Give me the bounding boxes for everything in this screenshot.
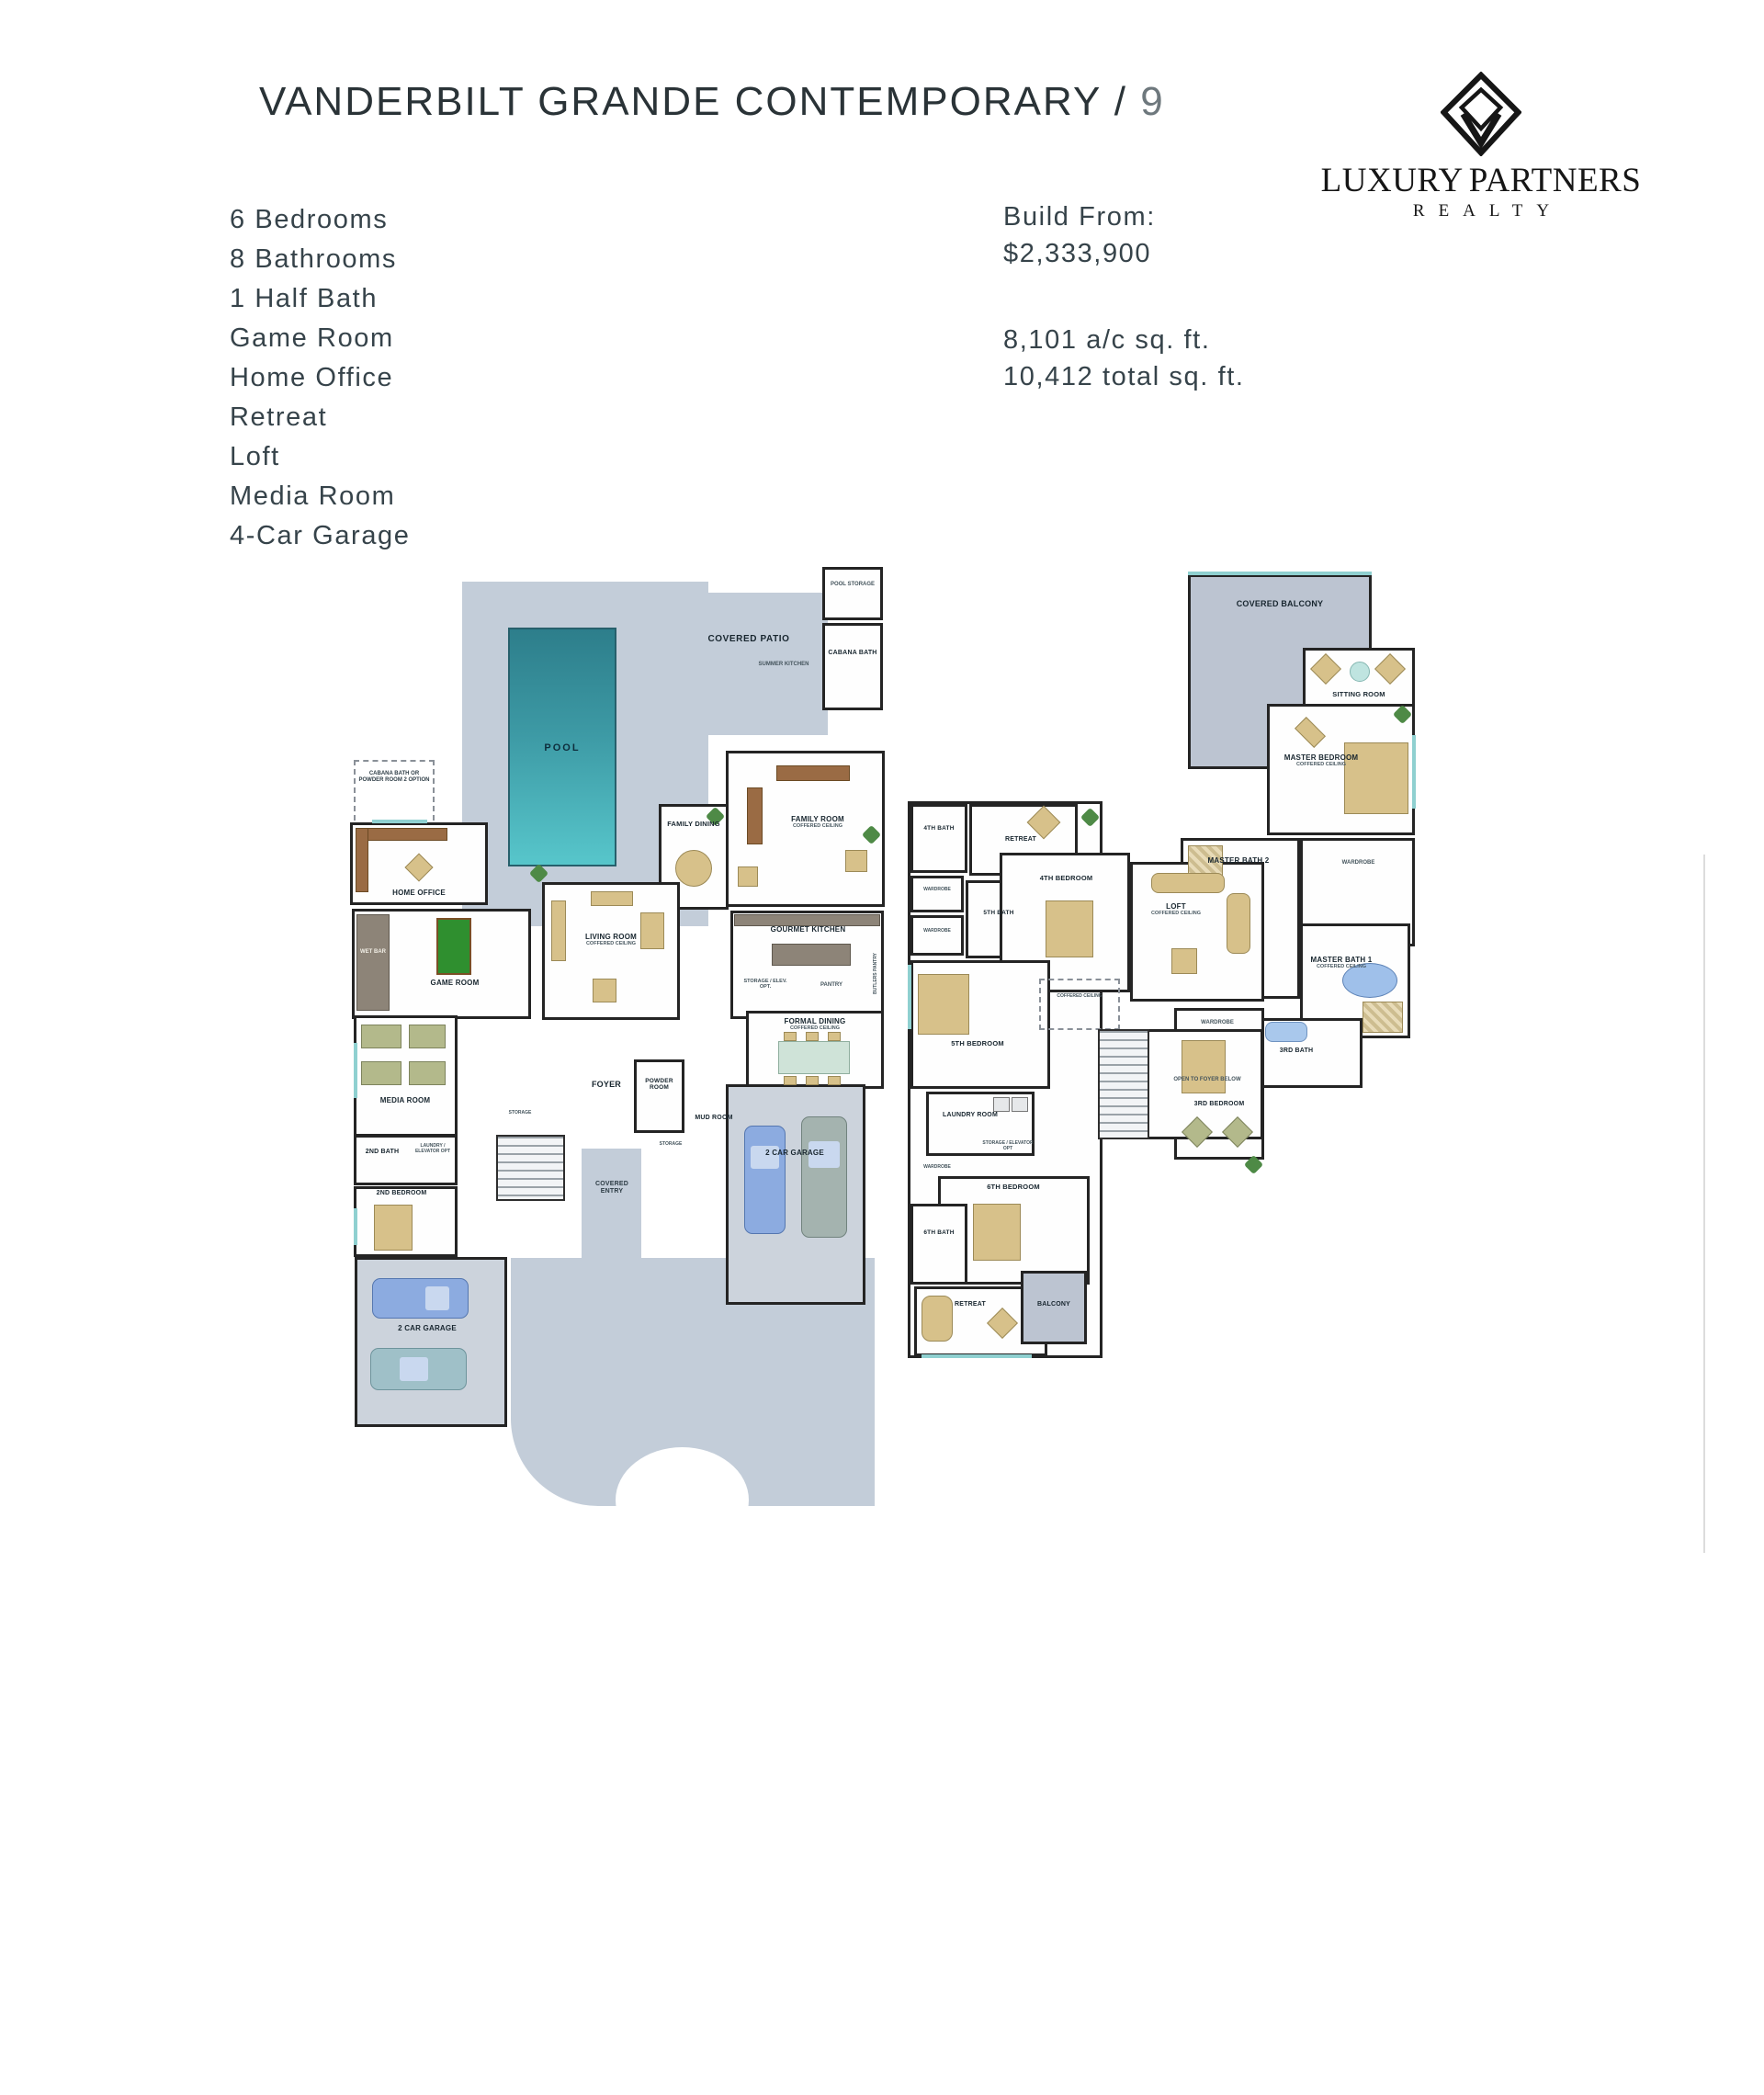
window-sill bbox=[354, 1208, 357, 1245]
dining-chair bbox=[828, 1032, 841, 1041]
media-sofa bbox=[361, 1025, 401, 1048]
storage-elevator-label: STORAGE / ELEV. OPT. bbox=[738, 979, 793, 990]
living-room-text: LIVING ROOM bbox=[585, 933, 637, 941]
brand-name: LUXURYPARTNERS bbox=[1297, 161, 1665, 200]
bedroom5-label: 5TH BEDROOM bbox=[918, 1040, 1037, 1048]
brand-subtitle: REALTY bbox=[1297, 201, 1665, 221]
bath4-label: 4TH BATH bbox=[912, 825, 966, 832]
laundry-elevator-label: LAUNDRY / ELEVATOR OPT bbox=[411, 1144, 455, 1154]
dining-chair bbox=[828, 1076, 841, 1085]
media-sofa bbox=[409, 1061, 446, 1085]
desk bbox=[356, 828, 368, 892]
living-room-label: LIVING ROOMCOFFERED CEILING bbox=[560, 933, 661, 947]
sofa bbox=[591, 891, 633, 906]
sofa bbox=[1227, 893, 1250, 954]
staircase bbox=[1098, 1029, 1149, 1139]
bath3-label: 3RD BATH bbox=[1269, 1047, 1324, 1055]
dryer bbox=[1012, 1097, 1028, 1112]
family-dining-label: FAMILY DINING bbox=[661, 821, 727, 829]
bath6-label: 6TH BATH bbox=[912, 1229, 966, 1236]
storage-label-2: STORAGE bbox=[648, 1142, 694, 1148]
cabana-bath-label: CABANA BATH bbox=[824, 650, 881, 657]
open-to-foyer-label: OPEN TO FOYER BELOW bbox=[1157, 1077, 1258, 1083]
pantry-label: PANTRY bbox=[808, 982, 854, 989]
master-bedroom-label: MASTER BEDROOMCOFFERED CEILING bbox=[1271, 753, 1372, 768]
feature-item: 6 Bedrooms bbox=[230, 200, 411, 240]
car bbox=[372, 1278, 469, 1319]
pool-storage-room bbox=[822, 567, 883, 620]
build-from-label: Build From: bbox=[1003, 198, 1245, 235]
master-bedroom-coffered: COFFERED CEILING bbox=[1271, 762, 1372, 767]
garage-left-label: 2 CAR GARAGE bbox=[372, 1324, 482, 1332]
bed bbox=[973, 1204, 1021, 1261]
bed bbox=[918, 974, 969, 1035]
brand-logo: LUXURYPARTNERS REALTY bbox=[1297, 72, 1665, 221]
game-room-label: GAME ROOM bbox=[400, 979, 510, 987]
page-title-text: VANDERBILT GRANDE CONTEMPORARY / bbox=[259, 79, 1127, 124]
formal-dining-label: FORMAL DININGCOFFERED CEILING bbox=[751, 1017, 879, 1032]
loft-text: LOFT bbox=[1166, 902, 1186, 911]
formal-dining-coffered: COFFERED CEILING bbox=[751, 1025, 879, 1031]
bedroom6-label: 6TH BEDROOM bbox=[949, 1183, 1078, 1192]
master-bath1-coffered: COFFERED CEILING bbox=[1300, 964, 1383, 969]
second-bedroom-label: 2ND BEDROOM bbox=[356, 1190, 447, 1197]
wardrobe-label-4: WARDROBE bbox=[912, 929, 962, 934]
feature-item: Loft bbox=[230, 437, 411, 477]
shower bbox=[1363, 1002, 1403, 1033]
retreat-top-label: RETREAT bbox=[975, 836, 1067, 844]
feature-item: Home Office bbox=[230, 358, 411, 398]
pool-table bbox=[436, 918, 471, 975]
sofa bbox=[1151, 873, 1225, 893]
wardrobe-label-3: WARDROBE bbox=[912, 888, 962, 893]
armchair bbox=[593, 979, 616, 1002]
cabana-bath-room bbox=[822, 623, 883, 710]
coffered-ceiling-label: COFFERED CEILING bbox=[1043, 994, 1116, 1000]
powder-room bbox=[634, 1059, 684, 1133]
first-floor-plan: POOL COVERED PATIO SUMMER KITCHEN POOL S… bbox=[345, 547, 888, 1512]
pricing-block: Build From: $2,333,900 8,101 a/c sq. ft.… bbox=[1003, 198, 1245, 395]
bath6-room bbox=[910, 1204, 967, 1285]
bath4-room bbox=[910, 804, 967, 873]
master-bath2-label: MASTER BATH 2 bbox=[1188, 856, 1289, 865]
armchair bbox=[738, 866, 758, 887]
dining-table bbox=[675, 850, 712, 887]
gourmet-kitchen-label: GOURMET KITCHEN bbox=[741, 925, 875, 934]
armchair bbox=[845, 850, 867, 872]
butlers-pantry-label: BUTLERS PANTRY bbox=[874, 942, 879, 1006]
bedroom3-label: 3RD BEDROOM bbox=[1177, 1101, 1261, 1108]
window-sill bbox=[372, 820, 427, 823]
pool: POOL bbox=[508, 628, 616, 866]
brand-left: LUXURY bbox=[1321, 162, 1464, 199]
window-sill bbox=[908, 965, 911, 1029]
bedroom4-label: 4TH BEDROOM bbox=[1013, 875, 1119, 883]
master-bedroom-text: MASTER BEDROOM bbox=[1284, 753, 1359, 762]
bed bbox=[1046, 900, 1093, 957]
laundry-room-label: LAUNDRY ROOM bbox=[929, 1112, 1012, 1119]
staircase bbox=[496, 1135, 565, 1201]
mud-room-label: MUD ROOM bbox=[686, 1115, 741, 1122]
ottoman bbox=[1171, 948, 1197, 974]
family-room-label: FAMILY ROOMCOFFERED CEILING bbox=[763, 815, 873, 830]
page-title: VANDERBILT GRANDE CONTEMPORARY / 9 bbox=[259, 79, 1165, 125]
covered-entry-label: COVERED ENTRY bbox=[585, 1181, 639, 1195]
feature-item: 1 Half Bath bbox=[230, 279, 411, 319]
scan-edge-artifact bbox=[1703, 855, 1705, 1553]
media-sofa bbox=[361, 1061, 401, 1085]
window-sill bbox=[922, 1354, 1032, 1358]
car bbox=[370, 1348, 467, 1390]
window-sill bbox=[1188, 572, 1372, 575]
car bbox=[801, 1116, 847, 1238]
garage-right-label: 2 CAR GARAGE bbox=[730, 1149, 859, 1157]
page-title-truncated: 9 bbox=[1140, 79, 1164, 124]
feature-item: Game Room bbox=[230, 319, 411, 358]
balcony-label: BALCONY bbox=[1024, 1301, 1083, 1308]
bed bbox=[374, 1205, 413, 1251]
wardrobe-label-2: WARDROBE bbox=[1181, 1020, 1254, 1026]
media-sofa bbox=[409, 1025, 446, 1048]
storage-elevator-label-2: STORAGE / ELEVATOR OPT bbox=[978, 1141, 1037, 1151]
loft-label: LOFTCOFFERED CEILING bbox=[1135, 902, 1217, 917]
formal-dining-text: FORMAL DINING bbox=[785, 1017, 846, 1025]
foyer-label: FOYER bbox=[574, 1080, 639, 1089]
sofa bbox=[747, 787, 763, 844]
second-floor-plan: COVERED BALCONY SITTING ROOM MASTER BEDR… bbox=[885, 570, 1416, 1387]
living-room-coffered: COFFERED CEILING bbox=[560, 941, 661, 946]
car bbox=[744, 1126, 786, 1234]
price-value: $2,333,900 bbox=[1003, 235, 1245, 272]
coffered-ceiling-box bbox=[1039, 979, 1120, 1030]
pool-label: POOL bbox=[510, 742, 615, 754]
wet-bar-label: WET BAR bbox=[357, 949, 389, 956]
family-room-coffered: COFFERED CEILING bbox=[763, 823, 873, 829]
dining-chair bbox=[784, 1076, 797, 1085]
sitting-room-label: SITTING ROOM bbox=[1306, 691, 1412, 699]
covered-balcony-label: COVERED BALCONY bbox=[1206, 599, 1353, 608]
washer bbox=[993, 1097, 1010, 1112]
side-table bbox=[1350, 662, 1370, 682]
bath5-label: 5TH BATH bbox=[969, 910, 1028, 916]
diamond-logo-icon bbox=[1441, 72, 1521, 156]
wet-bar-counter bbox=[356, 914, 390, 1011]
dining-chair bbox=[784, 1032, 797, 1041]
wardrobe-room bbox=[910, 876, 964, 912]
feature-item: 8 Bathrooms bbox=[230, 240, 411, 279]
wardrobe-label-5: WARDROBE bbox=[912, 1165, 962, 1171]
window-sill bbox=[1412, 735, 1416, 809]
powder-room-label: POWDER ROOM bbox=[635, 1078, 684, 1092]
dining-chair bbox=[806, 1032, 819, 1041]
sofa bbox=[551, 900, 566, 961]
loft-coffered: COFFERED CEILING bbox=[1135, 911, 1217, 916]
window-sill bbox=[354, 1043, 357, 1098]
retreat-bottom-label: RETREAT bbox=[929, 1301, 1012, 1308]
wardrobe-room bbox=[910, 915, 964, 956]
master-bath1-label: MASTER BATH 1COFFERED CEILING bbox=[1300, 956, 1383, 970]
sofa bbox=[776, 765, 850, 781]
feature-item: Retreat bbox=[230, 398, 411, 437]
cabana-option-label: CABANA BATH OR POWDER ROOM 2 OPTION bbox=[357, 771, 431, 783]
second-bath-label: 2ND BATH bbox=[356, 1149, 409, 1156]
driveway-notch bbox=[616, 1447, 749, 1553]
pool-storage-label: POOL STORAGE bbox=[826, 582, 879, 588]
feature-item: Media Room bbox=[230, 477, 411, 516]
bed bbox=[1182, 1040, 1226, 1093]
total-sqft: 10,412 total sq. ft. bbox=[1003, 358, 1245, 395]
feature-list: 6 Bedrooms8 Bathrooms1 Half BathGame Roo… bbox=[230, 200, 411, 556]
wardrobe-label: WARDROBE bbox=[1324, 860, 1393, 866]
summer-kitchen-label: SUMMER KITCHEN bbox=[756, 662, 811, 668]
media-room-label: MEDIA ROOM bbox=[359, 1096, 451, 1104]
covered-patio-label: COVERED PATIO bbox=[675, 634, 822, 645]
kitchen-island bbox=[772, 944, 851, 966]
storage-label: STORAGE bbox=[497, 1111, 543, 1116]
family-room-text: FAMILY ROOM bbox=[791, 815, 844, 823]
dining-chair bbox=[806, 1076, 819, 1085]
brand-right: PARTNERS bbox=[1469, 162, 1642, 199]
desk bbox=[356, 828, 447, 841]
home-office-label: HOME OFFICE bbox=[368, 889, 469, 897]
bathtub bbox=[1265, 1022, 1307, 1042]
covered-entry-walk bbox=[582, 1149, 641, 1300]
ac-sqft: 8,101 a/c sq. ft. bbox=[1003, 322, 1245, 358]
master-bath1-text: MASTER BATH 1 bbox=[1311, 956, 1373, 964]
formal-dining-table bbox=[778, 1041, 850, 1074]
